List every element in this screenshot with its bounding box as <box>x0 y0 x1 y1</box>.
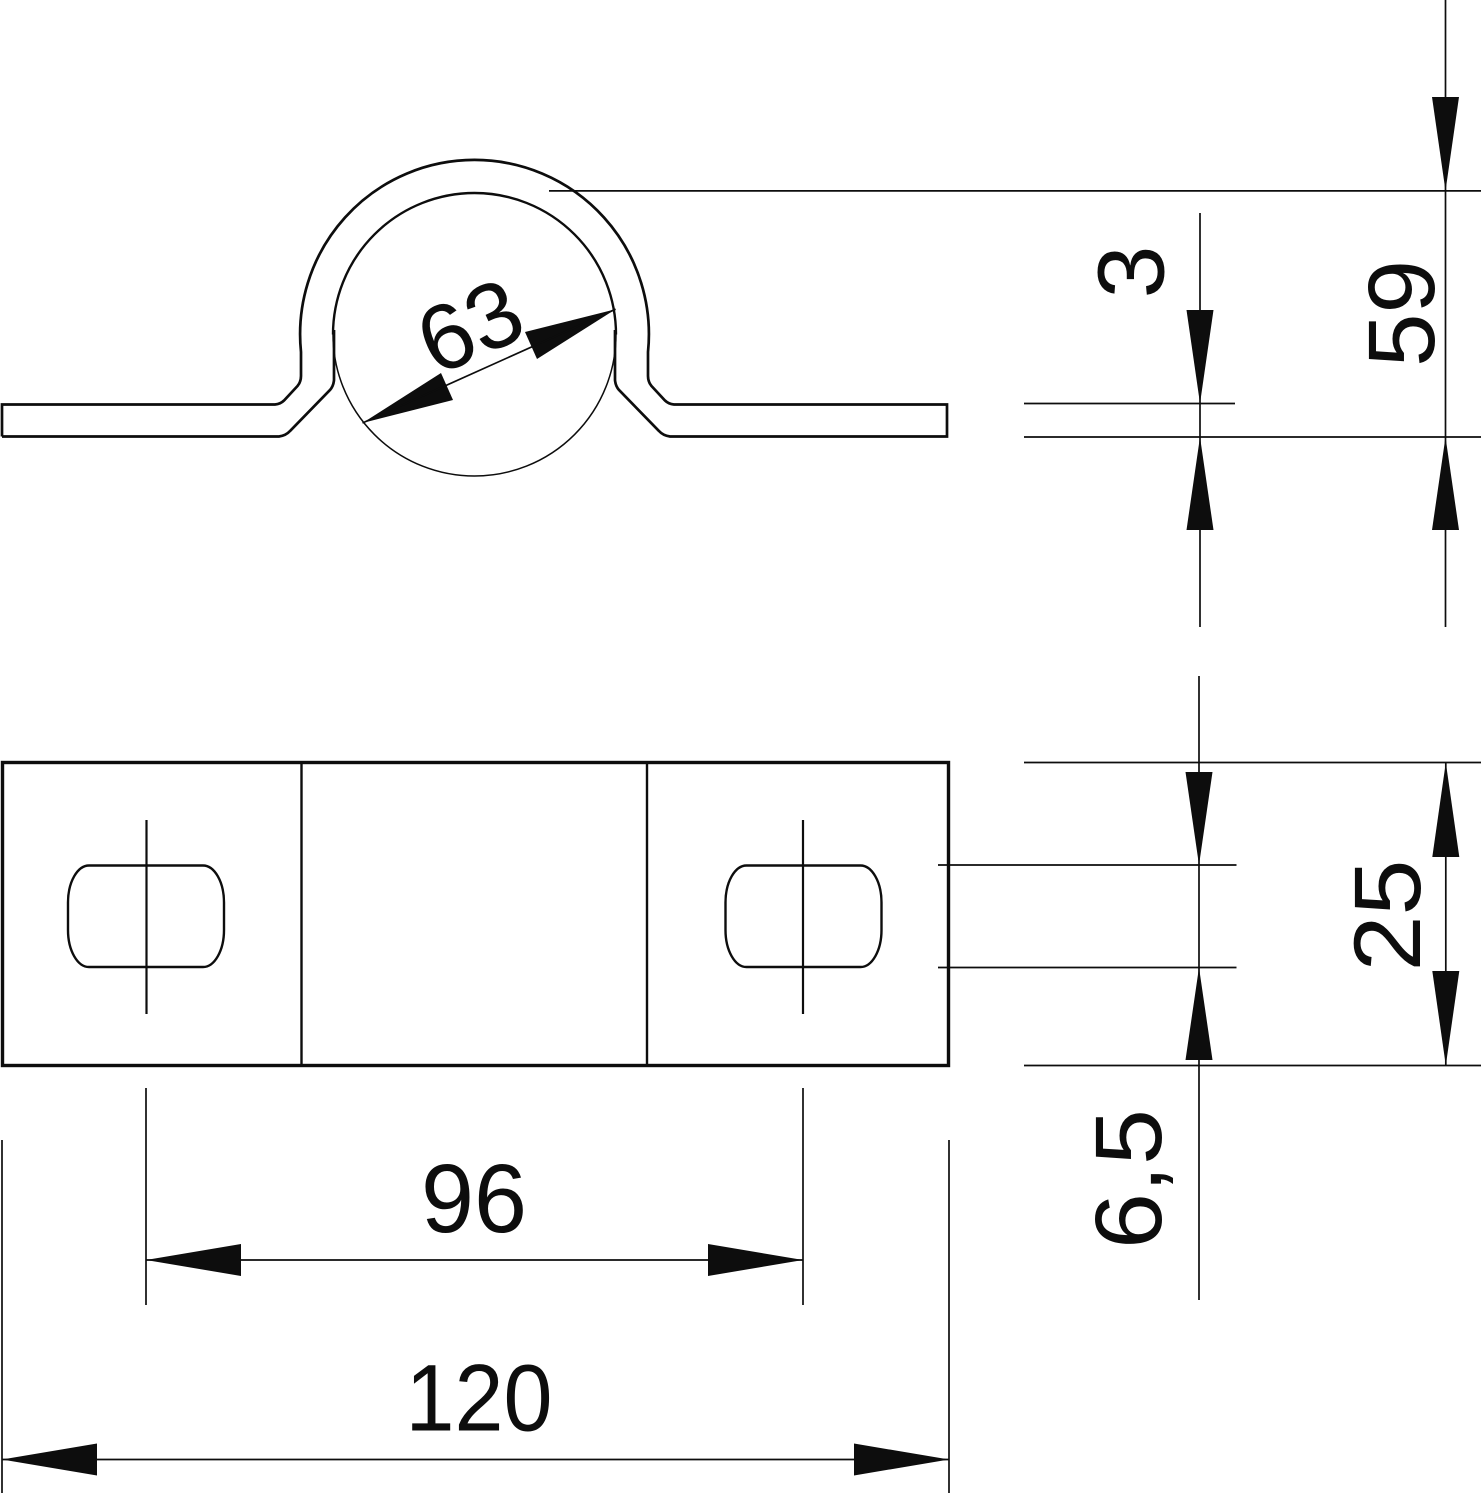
svg-text:96: 96 <box>421 1144 527 1253</box>
svg-text:3: 3 <box>1079 246 1185 299</box>
svg-text:59: 59 <box>1349 260 1455 367</box>
svg-text:25: 25 <box>1335 860 1441 972</box>
svg-text:6,5: 6,5 <box>1076 1109 1182 1249</box>
svg-text:120: 120 <box>406 1346 553 1452</box>
